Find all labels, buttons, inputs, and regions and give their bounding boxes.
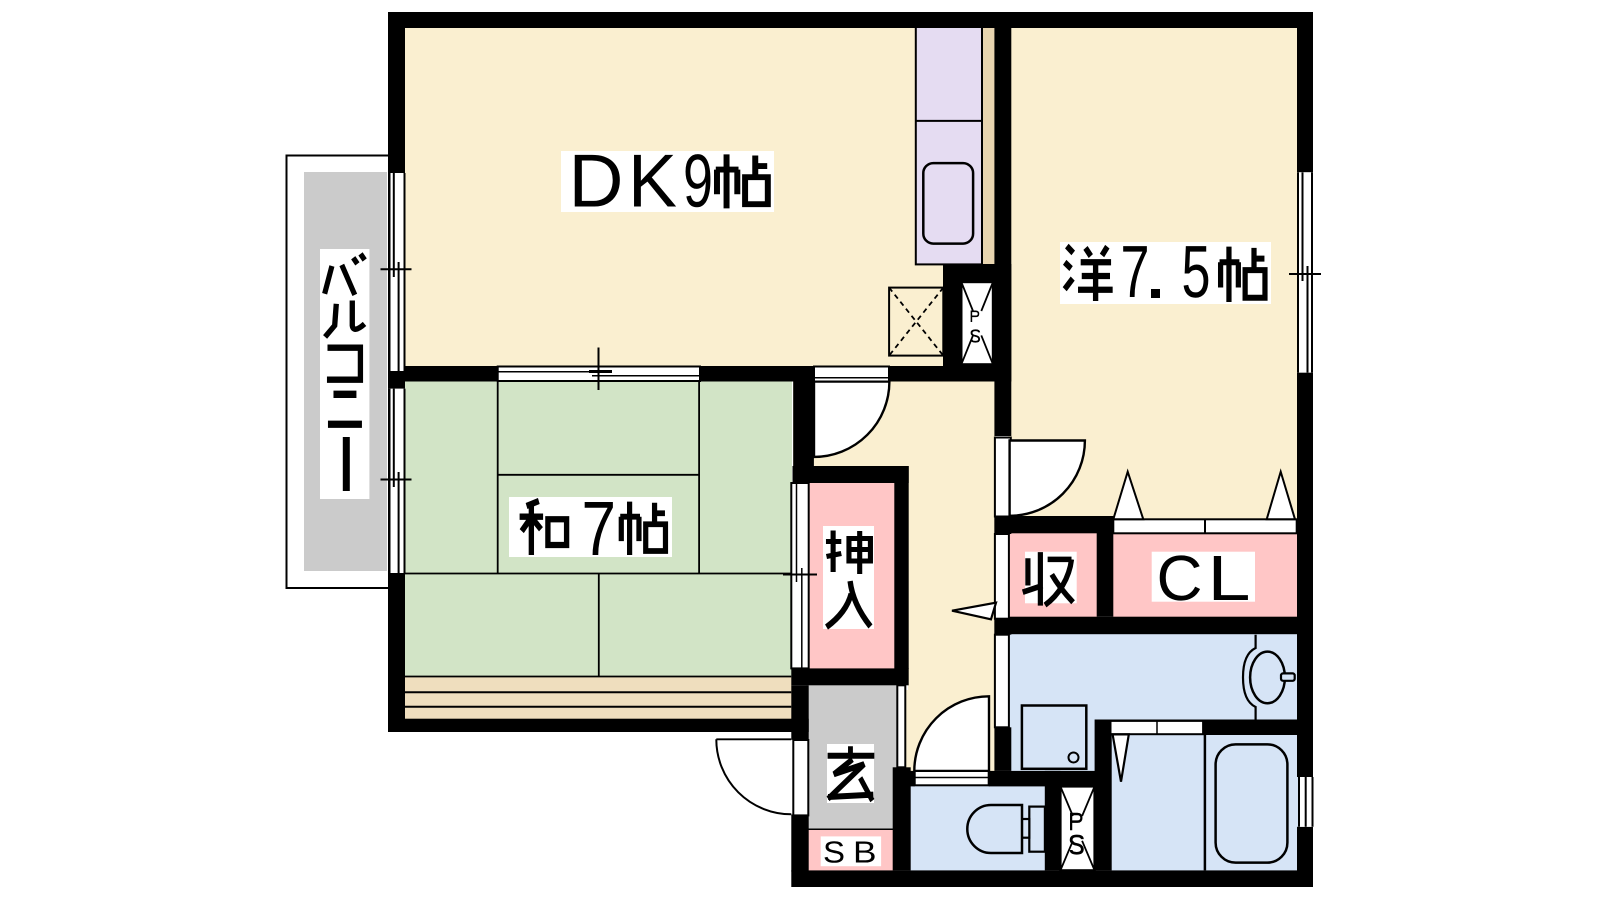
- svg-text:7: 7: [1121, 230, 1150, 313]
- svg-text:S: S: [823, 836, 845, 870]
- svg-text:5: 5: [1182, 230, 1211, 313]
- svg-text:D: D: [569, 139, 624, 223]
- svg-text:C: C: [1157, 542, 1203, 614]
- svg-text:7: 7: [582, 486, 617, 572]
- svg-text:B: B: [853, 836, 877, 870]
- svg-text:L: L: [1208, 542, 1251, 614]
- svg-text:9: 9: [683, 139, 713, 223]
- svg-text:K: K: [628, 139, 677, 223]
